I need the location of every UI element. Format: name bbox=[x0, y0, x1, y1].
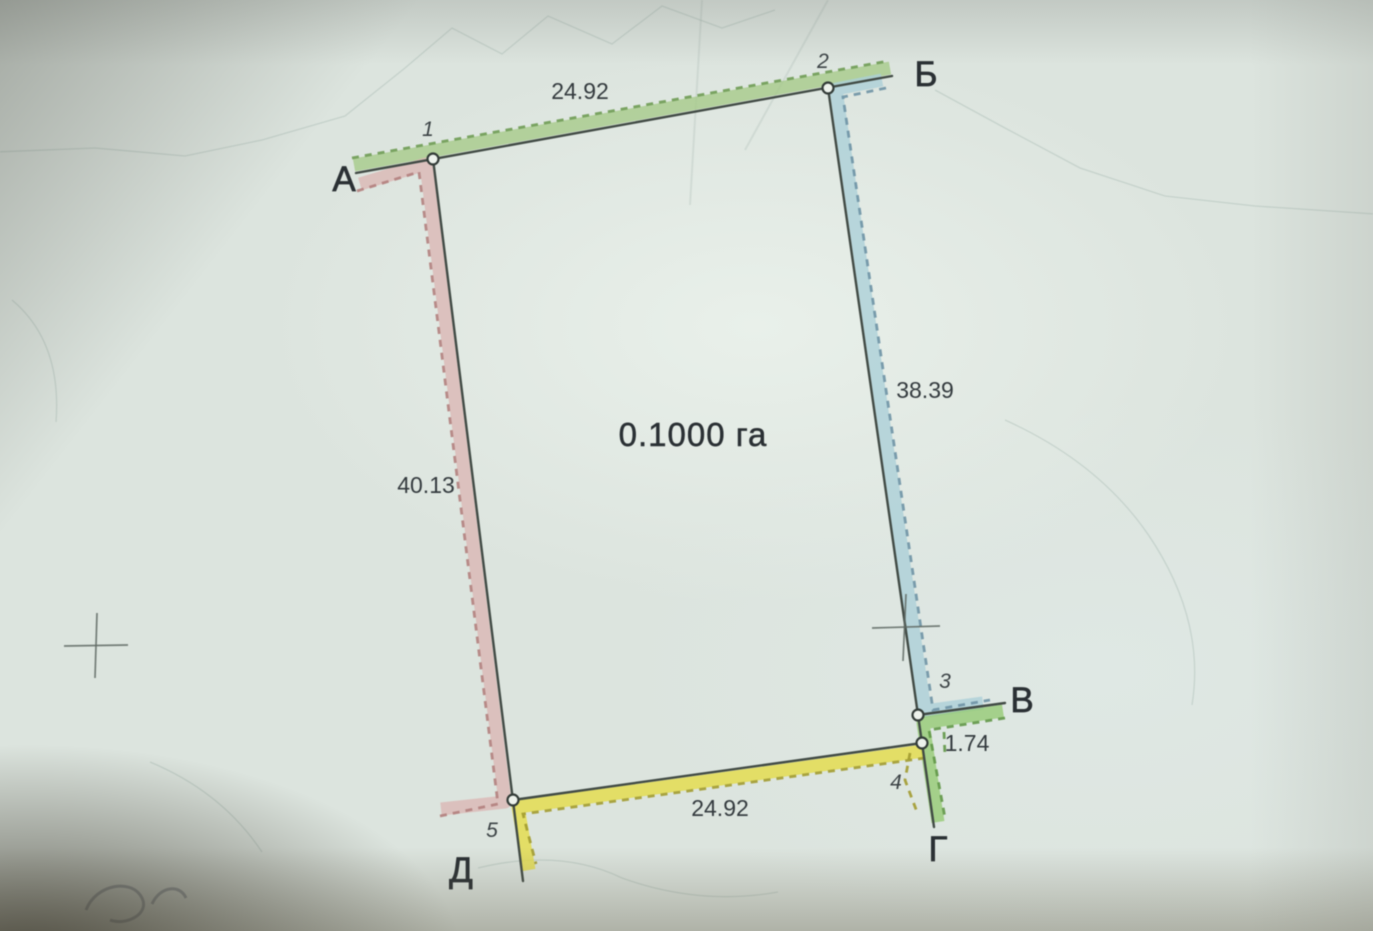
contour-bottom-left bbox=[150, 762, 262, 852]
point-number-1: 1 bbox=[422, 118, 434, 141]
point-number-2: 2 bbox=[816, 50, 829, 73]
boundary-side-da bbox=[433, 159, 523, 881]
handwritten-scribble bbox=[86, 886, 186, 921]
grid-cross-left-v bbox=[95, 613, 97, 678]
vertex-label-b: Б bbox=[915, 55, 938, 94]
vertex-label-d: Д bbox=[449, 851, 473, 890]
vertex-label-v: В bbox=[1010, 681, 1033, 720]
dashed-side-ab bbox=[352, 61, 888, 158]
boundary-side-gd bbox=[513, 743, 922, 800]
parcel-area-label: 0.1000 га bbox=[619, 416, 768, 453]
point-marker-2 bbox=[823, 83, 834, 94]
contour-slope-right bbox=[1005, 420, 1195, 705]
vertex-label-a: А bbox=[332, 160, 356, 199]
grid-cross-right-h bbox=[872, 626, 940, 628]
side-length-vg: 1.74 bbox=[945, 730, 990, 756]
contour-ridge-right bbox=[935, 90, 1373, 214]
point-number-3: 3 bbox=[939, 670, 951, 693]
boundary-color-bands bbox=[354, 68, 1003, 870]
point-marker-4 bbox=[917, 738, 928, 749]
point-marker-3 bbox=[913, 710, 924, 721]
parcel-plan-drawing: А Б В Г Д 1 2 3 4 5 24.92 38.39 1.74 24.… bbox=[0, 0, 1373, 931]
boundary-dashed-lines bbox=[352, 61, 1005, 864]
point-marker-5 bbox=[508, 795, 519, 806]
band-side-ab-green bbox=[354, 68, 890, 165]
point-number-5: 5 bbox=[486, 819, 498, 842]
vertex-label-g: Г bbox=[929, 830, 948, 869]
scanned-cadastral-plan-photo: А Б В Г Д 1 2 3 4 5 24.92 38.39 1.74 24.… bbox=[0, 0, 1373, 931]
side-length-gd: 24.92 bbox=[691, 795, 749, 821]
side-length-da: 40.13 bbox=[397, 472, 455, 498]
side-length-bv: 38.39 bbox=[896, 377, 954, 403]
grid-cross-left bbox=[64, 613, 128, 678]
contour-slope-left bbox=[12, 300, 57, 422]
side-length-ab: 24.92 bbox=[551, 78, 609, 104]
point-marker-1 bbox=[428, 154, 439, 165]
point-number-4: 4 bbox=[890, 771, 902, 794]
contour-ridge-top bbox=[0, 6, 775, 156]
grid-cross-right bbox=[872, 594, 940, 661]
